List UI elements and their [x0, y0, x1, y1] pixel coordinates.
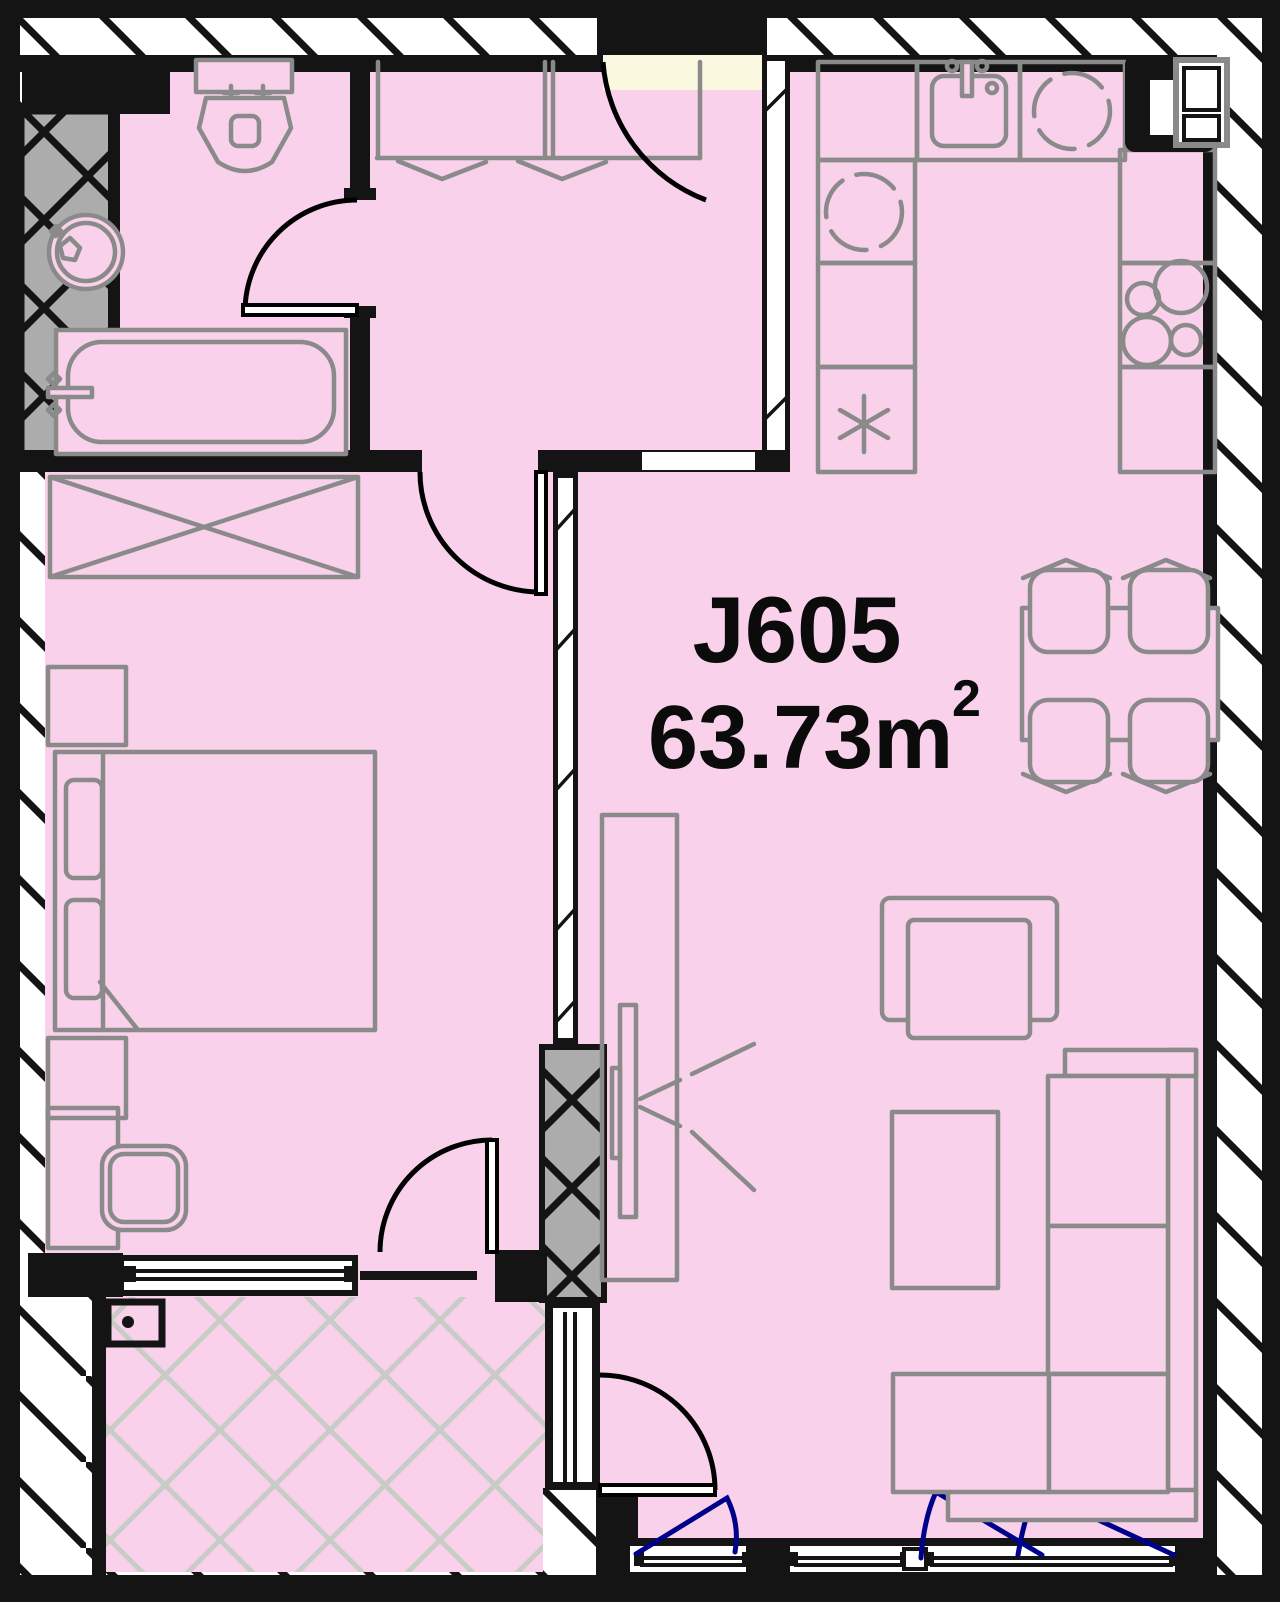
washbasin: [49, 215, 123, 289]
vent-shaft: [1125, 55, 1227, 152]
coffee-table: [892, 1112, 998, 1288]
sofa-cushion: [1049, 1374, 1168, 1492]
hall-passage-opening: [642, 452, 755, 470]
unit-area: 63.73m: [648, 688, 953, 788]
duct-block: [22, 57, 170, 114]
dining-chair: [1030, 570, 1108, 652]
entry-threshold: [603, 55, 763, 90]
tv: [620, 1005, 636, 1217]
bed: [55, 752, 375, 1030]
sofa-cushion: [893, 1374, 1049, 1492]
unit-area-exponent: 2: [952, 670, 981, 728]
balcony-door-threshold: [360, 1271, 477, 1280]
dining-chair: [1130, 570, 1208, 652]
balcony-floor: [103, 1297, 545, 1572]
desk-chair: [102, 1146, 186, 1230]
armchair: [882, 898, 1057, 1038]
dining-chair: [1130, 700, 1208, 782]
structural-column: [542, 1047, 604, 1300]
entry-lintel: [597, 18, 767, 57]
unit-label: J605: [692, 577, 901, 682]
sofa-cushion: [1048, 1076, 1168, 1226]
floor-plan-page: J605 63.73m 2: [0, 0, 1280, 1602]
dining-chair: [1030, 700, 1108, 782]
sofa-cushion: [1048, 1226, 1168, 1374]
floor-plan-canvas: J605 63.73m 2: [0, 0, 1280, 1602]
living-balcony-door-frame: [545, 1300, 600, 1490]
bathtub: [48, 330, 346, 454]
